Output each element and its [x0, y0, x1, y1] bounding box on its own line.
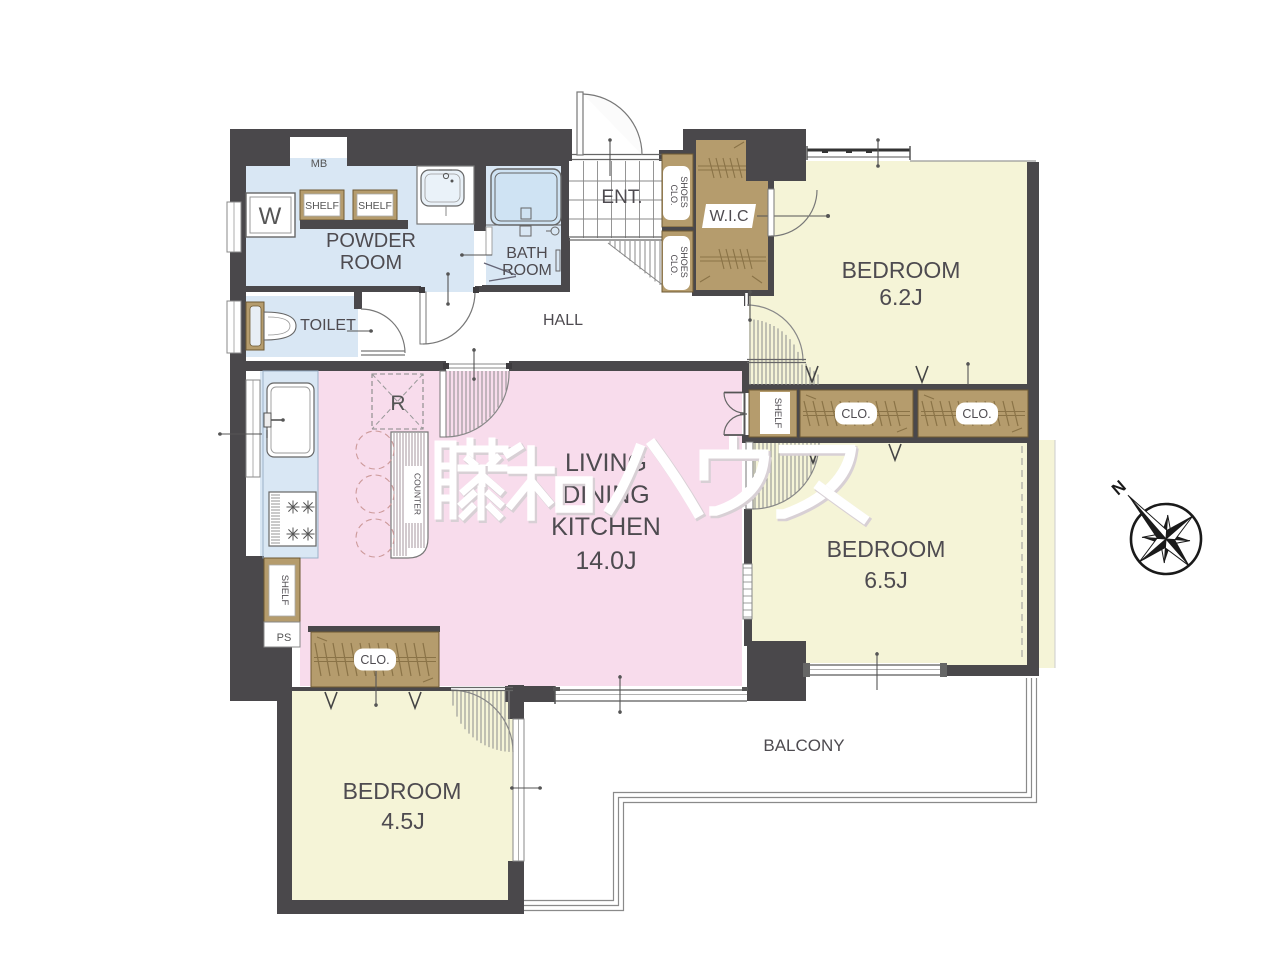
svg-text:6.5J: 6.5J [864, 567, 907, 593]
svg-text:SHELF: SHELF [358, 200, 392, 212]
svg-text:R: R [390, 392, 405, 415]
svg-text:N: N [1108, 477, 1130, 499]
svg-text:CLO.: CLO. [841, 407, 870, 421]
svg-text:BEDROOM: BEDROOM [827, 536, 946, 562]
svg-text:14.0J: 14.0J [575, 547, 636, 575]
svg-text:ROOM: ROOM [340, 252, 402, 274]
svg-text:KITCHEN: KITCHEN [551, 513, 661, 541]
svg-text:SHOES: SHOES [679, 246, 689, 278]
svg-text:PS: PS [277, 632, 292, 644]
svg-text:HALL: HALL [543, 312, 583, 329]
svg-text:BEDROOM: BEDROOM [842, 257, 961, 283]
svg-text:BALCONY: BALCONY [763, 736, 844, 755]
svg-text:BATH: BATH [506, 245, 547, 262]
svg-text:COUNTER: COUNTER [413, 473, 423, 515]
svg-text:SHELF: SHELF [279, 575, 290, 606]
svg-text:W.I.C: W.I.C [709, 208, 748, 225]
svg-text:SHELF: SHELF [305, 200, 339, 212]
svg-text:ENT.: ENT. [601, 187, 642, 208]
svg-text:CLO.: CLO. [360, 653, 389, 667]
svg-text:CLO.: CLO. [669, 184, 679, 205]
svg-text:POWDER: POWDER [326, 230, 416, 252]
svg-text:SHOES: SHOES [679, 176, 689, 208]
svg-text:CLO.: CLO. [962, 407, 991, 421]
svg-text:SHELF: SHELF [772, 398, 783, 429]
svg-text:4.5J: 4.5J [381, 808, 424, 834]
svg-text:BEDROOM: BEDROOM [343, 778, 462, 804]
svg-text:MB: MB [311, 158, 328, 170]
svg-text:ROOM: ROOM [502, 262, 552, 279]
svg-text:CLO.: CLO. [669, 254, 679, 275]
svg-text:W: W [259, 203, 282, 230]
svg-text:6.2J: 6.2J [879, 284, 922, 310]
